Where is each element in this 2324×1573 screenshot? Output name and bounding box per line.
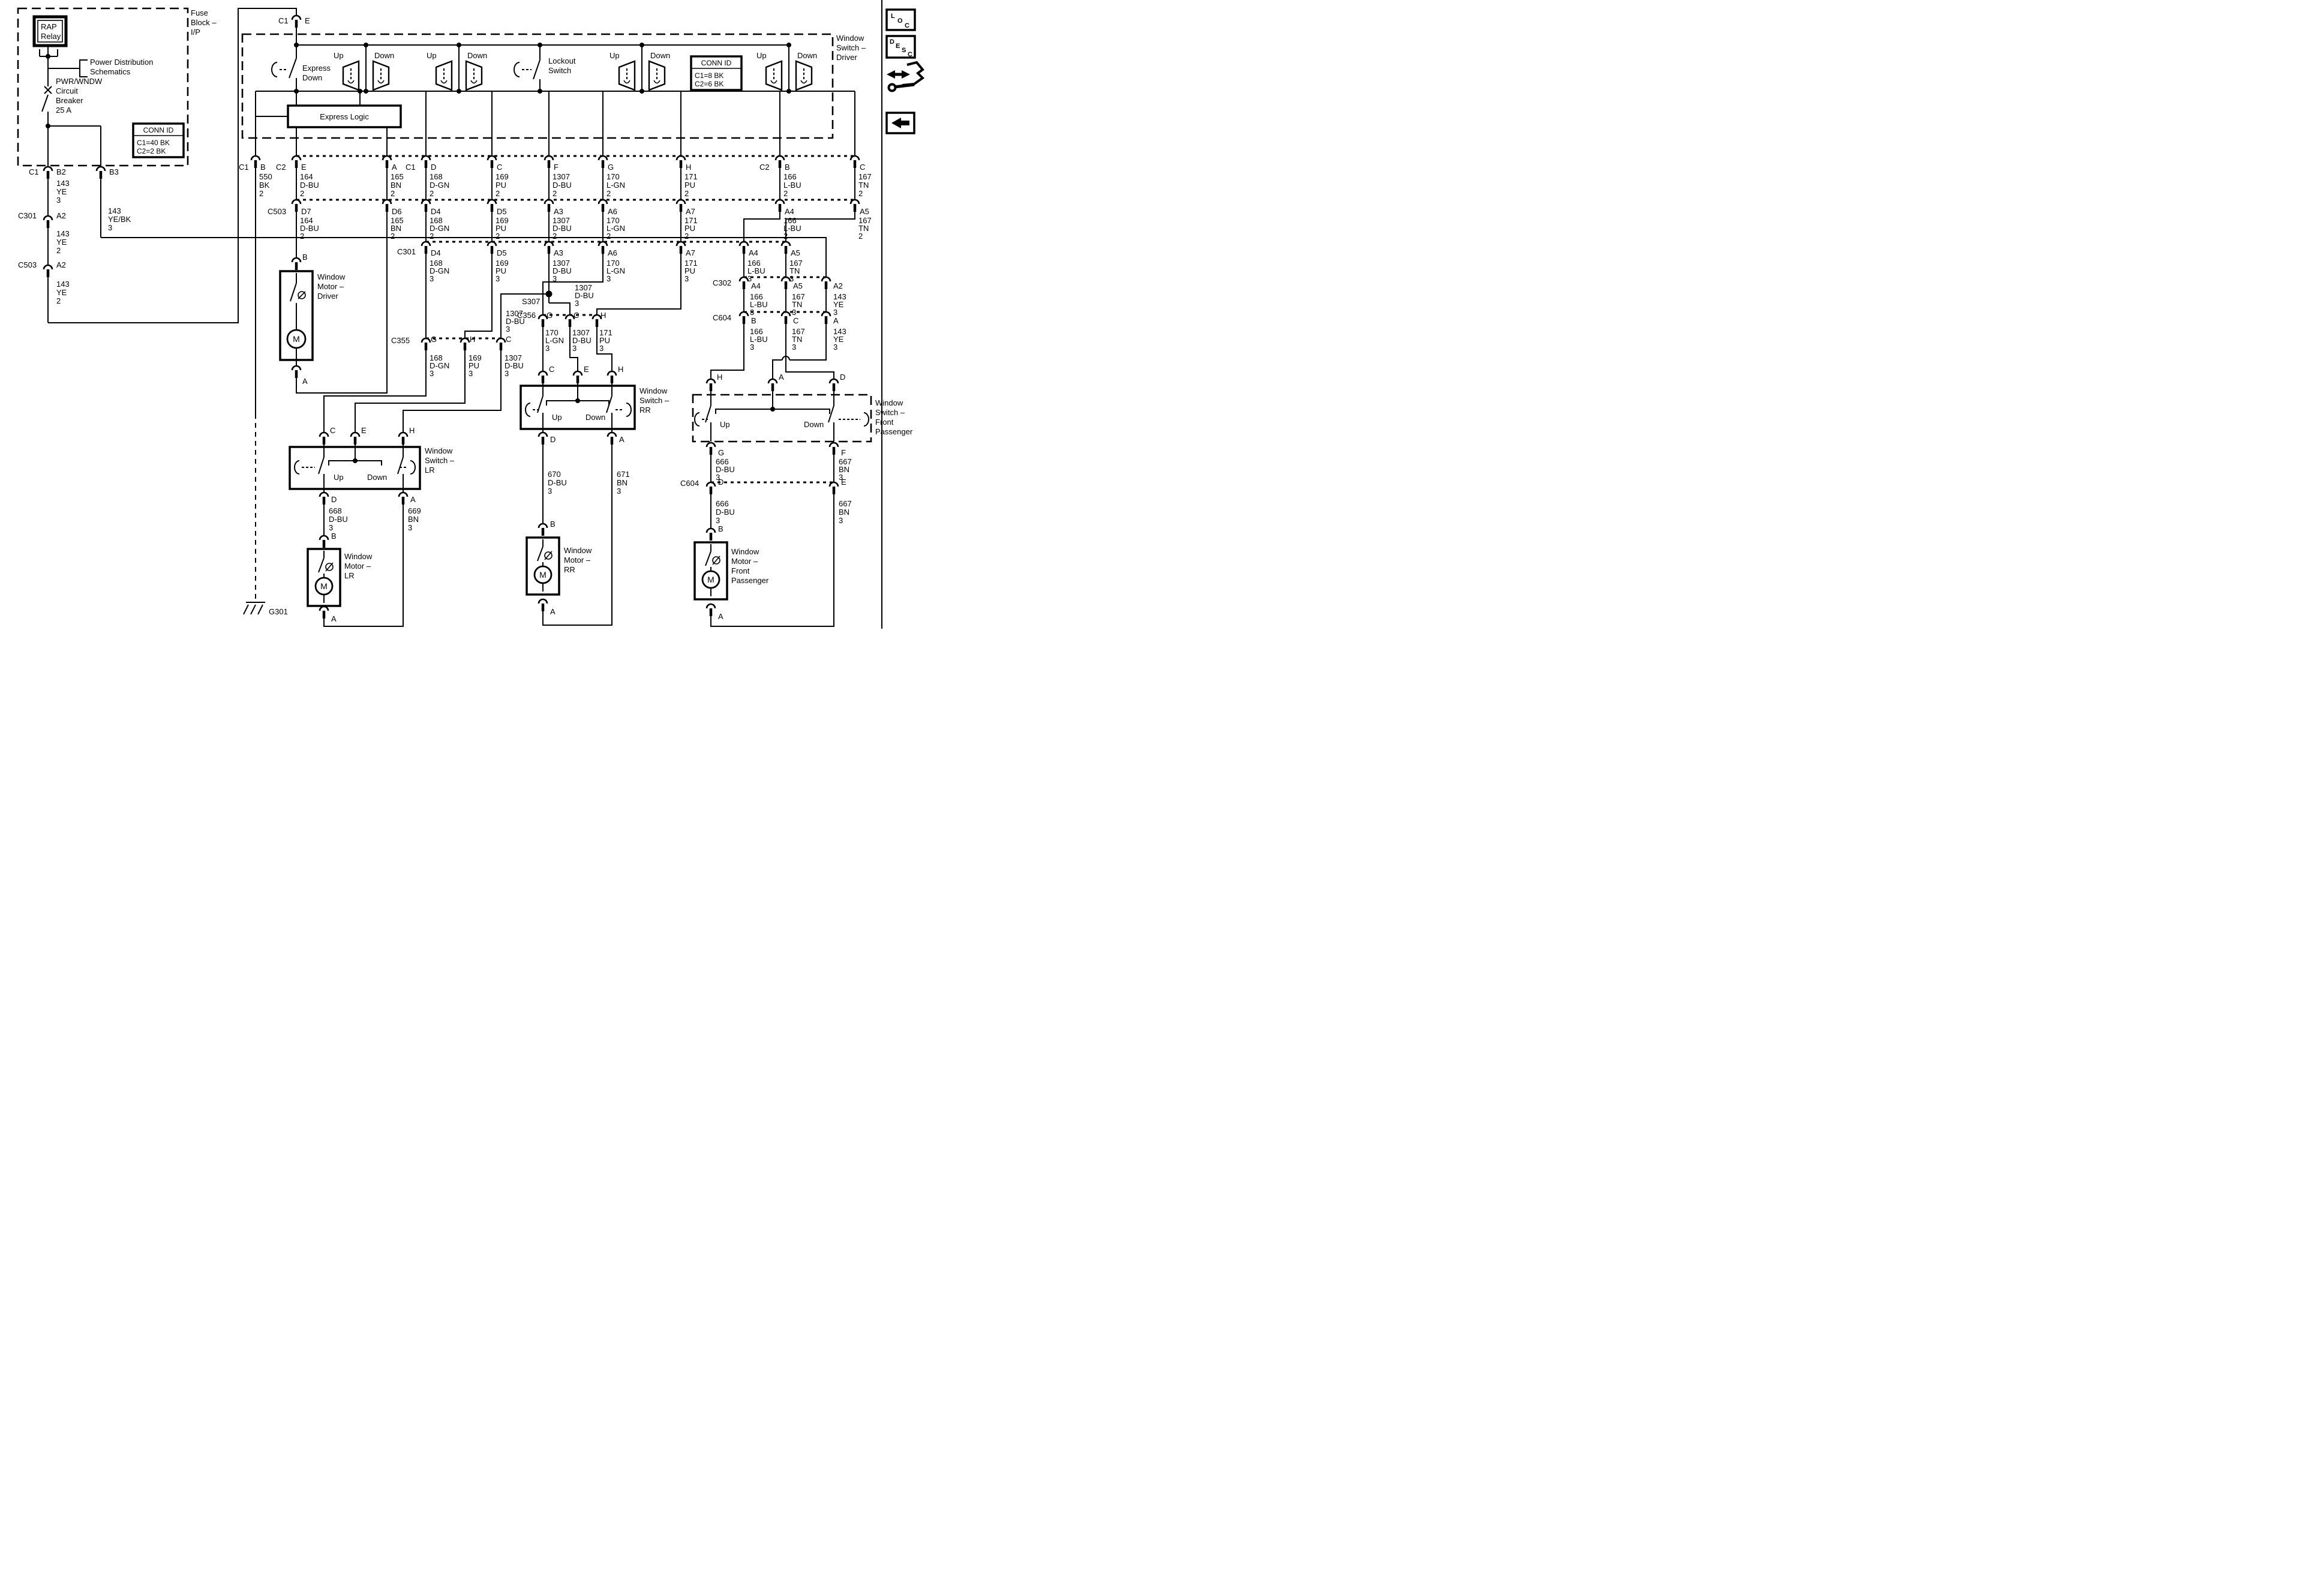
svg-text:PU: PU — [496, 181, 506, 190]
svg-text:C2: C2 — [759, 163, 770, 172]
svg-text:2: 2 — [430, 232, 434, 241]
svg-text:E: E — [584, 365, 589, 374]
svg-text:Window: Window — [317, 272, 346, 281]
svg-text:3: 3 — [505, 369, 509, 378]
svg-text:C: C — [574, 311, 579, 320]
svg-text:YE/BK: YE/BK — [108, 215, 131, 224]
svg-text:3: 3 — [56, 196, 61, 205]
svg-text:3: 3 — [839, 516, 843, 525]
svg-text:Power Distribution: Power Distribution — [90, 58, 154, 67]
ground-g301: G301 — [244, 168, 288, 616]
bracket-icon — [514, 62, 520, 77]
svg-text:Up: Up — [720, 420, 730, 429]
svg-text:3: 3 — [545, 344, 550, 353]
svg-text:Up: Up — [334, 473, 344, 482]
svg-text:D: D — [331, 495, 337, 504]
svg-text:3: 3 — [469, 369, 473, 378]
svg-text:3: 3 — [833, 343, 837, 352]
svg-text:3: 3 — [430, 369, 434, 378]
svg-text:169: 169 — [496, 172, 509, 181]
s307-splice: S307 1307D-BU3 1307D-BU3 — [501, 254, 594, 338]
window-motor-driver: B M Window Motor – Driver A — [280, 212, 387, 393]
svg-text:D-BU: D-BU — [548, 478, 567, 487]
svg-text:B3: B3 — [109, 167, 119, 176]
svg-text:H: H — [717, 373, 722, 382]
connector-row-1: C1 C2 C1 C2 B550BK2 E164D-BU2 A165BN2 D1… — [239, 156, 872, 198]
power-distribution-tap: Power Distribution Schematics — [48, 58, 154, 77]
sidebar: L O C D E S C — [882, 0, 923, 629]
svg-text:2: 2 — [553, 232, 557, 241]
svg-text:BN: BN — [617, 478, 627, 487]
svg-text:Down: Down — [804, 420, 824, 429]
connector-c356: C356 G C H 170L-GN3 1307D-BU3 171PU3 — [517, 254, 681, 371]
wiring-route-icon[interactable] — [887, 62, 923, 91]
svg-text:A2: A2 — [833, 281, 843, 290]
express-down-switch: Express Down — [272, 45, 331, 106]
svg-text:3: 3 — [496, 274, 500, 283]
svg-text:C2: C2 — [276, 163, 286, 172]
svg-text:LR: LR — [344, 571, 355, 580]
svg-text:143: 143 — [56, 280, 70, 289]
svg-text:668: 668 — [329, 506, 342, 515]
svg-text:D-GN: D-GN — [430, 181, 449, 190]
svg-text:A3: A3 — [554, 248, 563, 257]
svg-text:Down: Down — [367, 473, 387, 482]
svg-text:Relay: Relay — [41, 32, 61, 41]
svg-text:B: B — [331, 532, 337, 541]
svg-text:Express Logic: Express Logic — [320, 112, 369, 121]
bracket-icon — [272, 62, 277, 77]
svg-text:Up: Up — [334, 51, 344, 60]
svg-text:A3: A3 — [554, 207, 563, 216]
svg-text:A5: A5 — [791, 248, 800, 257]
svg-text:Passenger: Passenger — [875, 427, 913, 436]
svg-text:B: B — [550, 520, 556, 529]
svg-text:Passenger: Passenger — [731, 576, 769, 585]
svg-text:Switch –: Switch – — [639, 396, 669, 405]
svg-text:G: G — [431, 335, 437, 344]
svg-text:E: E — [301, 163, 307, 172]
svg-text:C355: C355 — [391, 336, 410, 345]
svg-text:RAP: RAP — [41, 22, 57, 31]
svg-text:E: E — [896, 43, 900, 50]
svg-text:G: G — [547, 311, 553, 320]
svg-text:Switch –: Switch – — [425, 456, 455, 465]
svg-text:C: C — [506, 335, 511, 344]
svg-text:YE: YE — [56, 288, 67, 297]
bracket-icon — [695, 413, 699, 426]
bracket-icon — [526, 403, 530, 416]
svg-text:A5: A5 — [860, 207, 869, 216]
svg-text:A: A — [833, 316, 839, 325]
svg-text:2: 2 — [858, 189, 863, 198]
svg-text:RR: RR — [639, 406, 651, 415]
svg-text:A4: A4 — [751, 281, 761, 290]
svg-text:Schematics: Schematics — [90, 67, 131, 76]
svg-text:C2=2 BK: C2=2 BK — [137, 147, 166, 155]
connector-pin-c301 — [44, 216, 52, 220]
svg-text:B: B — [785, 163, 790, 172]
svg-text:D5: D5 — [497, 248, 507, 257]
fp-switch-outline — [693, 395, 871, 442]
svg-text:143: 143 — [56, 229, 70, 238]
svg-text:A6: A6 — [608, 248, 617, 257]
svg-text:Window: Window — [836, 34, 864, 43]
svg-text:667: 667 — [839, 499, 852, 508]
svg-text:165: 165 — [391, 172, 404, 181]
svg-text:2: 2 — [858, 232, 863, 241]
svg-text:Window: Window — [875, 398, 903, 407]
svg-text:A: A — [619, 435, 624, 444]
svg-text:D-BU: D-BU — [329, 515, 348, 524]
svg-text:Down: Down — [650, 51, 670, 60]
svg-text:Motor –: Motor – — [317, 282, 344, 291]
svg-text:2: 2 — [430, 189, 434, 198]
svg-text:550: 550 — [259, 172, 272, 181]
svg-text:D-BU: D-BU — [300, 181, 319, 190]
express-logic-box: Express Logic — [288, 106, 401, 127]
svg-text:Down: Down — [302, 73, 322, 82]
svg-text:3: 3 — [750, 343, 754, 352]
svg-text:B: B — [751, 316, 756, 325]
svg-text:D-BU: D-BU — [553, 181, 572, 190]
svg-text:M: M — [707, 575, 714, 584]
svg-text:D4: D4 — [431, 248, 441, 257]
back-arrow-icon — [891, 118, 909, 128]
svg-text:167: 167 — [858, 172, 872, 181]
svg-text:B: B — [302, 253, 308, 262]
svg-text:Up: Up — [427, 51, 437, 60]
svg-text:C1: C1 — [278, 16, 289, 25]
svg-text:S: S — [902, 47, 906, 54]
svg-text:Block –: Block – — [191, 18, 217, 27]
svg-text:2: 2 — [496, 189, 500, 198]
svg-text:E: E — [305, 16, 310, 25]
bracket-icon — [80, 60, 88, 77]
svg-text:2: 2 — [391, 232, 395, 241]
svg-text:D6: D6 — [392, 207, 402, 216]
svg-text:Motor –: Motor – — [731, 557, 758, 566]
svg-text:H: H — [600, 311, 606, 320]
svg-text:C302: C302 — [713, 278, 731, 287]
svg-text:C1: C1 — [29, 167, 39, 176]
window-switch-rr: C E H Window Switch – RR Up Down D A 670… — [521, 365, 669, 625]
svg-text:2: 2 — [606, 232, 611, 241]
svg-text:CONN ID: CONN ID — [143, 126, 174, 134]
svg-text:YE: YE — [56, 238, 67, 247]
svg-text:3: 3 — [684, 274, 689, 283]
svg-text:170: 170 — [606, 172, 620, 181]
window-switch-front-passenger: H A D Window Switch – Front Passenger Up… — [680, 373, 913, 626]
svg-text:3: 3 — [506, 325, 510, 334]
svg-text:C503: C503 — [18, 260, 37, 269]
conn-id-driver-switch: CONN ID C1=8 BK C2=6 BK — [691, 56, 741, 90]
svg-text:BN: BN — [839, 508, 849, 517]
svg-text:D4: D4 — [431, 207, 441, 216]
connector-c355: C355 G H C 168D-GN3 169PU3 1307D-BU3 — [324, 254, 524, 433]
svg-text:E: E — [841, 478, 846, 487]
svg-text:Motor –: Motor – — [564, 556, 591, 565]
bracket-icon — [410, 461, 415, 474]
svg-text:3: 3 — [108, 223, 112, 232]
svg-text:YE: YE — [56, 187, 67, 196]
svg-text:D5: D5 — [497, 207, 507, 216]
svg-text:3: 3 — [430, 274, 434, 283]
conn-id-fuse-block: CONN ID C1=40 BK C2=2 BK — [133, 124, 184, 157]
svg-text:Window: Window — [639, 386, 668, 395]
svg-text:O: O — [897, 17, 903, 25]
svg-text:671: 671 — [617, 470, 630, 479]
svg-text:G301: G301 — [269, 607, 288, 616]
svg-text:669: 669 — [408, 506, 421, 515]
svg-text:LR: LR — [425, 466, 435, 475]
circuit-breaker: PWR/WNDW Circuit Breaker 25 A — [42, 77, 103, 126]
svg-text:2: 2 — [684, 189, 689, 198]
svg-text:C2=6 BK: C2=6 BK — [695, 80, 723, 88]
svg-text:D-BU: D-BU — [716, 508, 735, 517]
svg-text:Down: Down — [585, 413, 605, 422]
svg-text:CONN ID: CONN ID — [701, 59, 732, 67]
svg-text:Lockout: Lockout — [548, 56, 576, 65]
svg-text:A: A — [331, 614, 337, 623]
svg-text:B: B — [718, 524, 723, 533]
svg-text:Circuit: Circuit — [56, 86, 78, 95]
svg-text:C301: C301 — [18, 211, 37, 220]
svg-text:A: A — [302, 377, 308, 386]
svg-text:143: 143 — [108, 206, 121, 215]
svg-text:Switch: Switch — [548, 66, 571, 75]
svg-text:25 A: 25 A — [56, 106, 71, 115]
wiring-diagram-page: Fuse Block – I/P RAP Relay Power Distrib… — [0, 0, 929, 629]
svg-text:H: H — [686, 163, 691, 172]
svg-text:A6: A6 — [608, 207, 617, 216]
svg-text:2: 2 — [300, 189, 304, 198]
svg-text:D: D — [840, 373, 845, 382]
svg-text:3: 3 — [548, 487, 552, 496]
svg-text:Down: Down — [797, 51, 817, 60]
svg-text:Up: Up — [756, 51, 767, 60]
svg-text:3: 3 — [575, 299, 579, 308]
bracket-icon — [864, 413, 869, 426]
svg-text:3: 3 — [617, 487, 621, 496]
svg-text:3: 3 — [606, 274, 611, 283]
window-switch-driver: C1 E Window Switch – Driver Express Down… — [242, 16, 866, 156]
svg-text:BN: BN — [408, 515, 419, 524]
svg-text:A4: A4 — [749, 248, 758, 257]
svg-text:Down: Down — [374, 51, 394, 60]
svg-text:BK: BK — [259, 181, 270, 190]
svg-text:3: 3 — [329, 523, 333, 532]
svg-text:M: M — [320, 581, 328, 591]
svg-text:168: 168 — [430, 172, 443, 181]
svg-text:Window: Window — [344, 552, 373, 561]
rap-relay: RAP Relay — [34, 17, 66, 59]
svg-text:Motor –: Motor – — [344, 562, 371, 571]
svg-text:Window: Window — [425, 446, 453, 455]
svg-text:3: 3 — [716, 516, 720, 525]
svg-text:D: D — [431, 163, 436, 172]
svg-text:D: D — [718, 478, 723, 487]
svg-text:Driver: Driver — [317, 292, 338, 301]
svg-text:A: A — [718, 612, 723, 621]
svg-text:143: 143 — [56, 179, 70, 188]
svg-text:F: F — [554, 163, 559, 172]
connector-c604-lower: C604 D E — [680, 478, 846, 494]
svg-text:2: 2 — [56, 296, 61, 305]
svg-text:Switch –: Switch – — [836, 43, 866, 52]
svg-text:A: A — [550, 607, 556, 616]
lockout-switch: Lockout Switch — [514, 45, 576, 91]
svg-text:PWR/WNDW: PWR/WNDW — [56, 77, 103, 86]
svg-text:C: C — [549, 365, 554, 374]
svg-text:M: M — [539, 570, 547, 580]
svg-text:D: D — [550, 435, 556, 444]
svg-text:3: 3 — [599, 344, 603, 353]
svg-text:2: 2 — [391, 189, 395, 198]
svg-text:RR: RR — [564, 565, 575, 574]
svg-text:3: 3 — [792, 343, 796, 352]
svg-text:D: D — [890, 38, 894, 46]
svg-text:2: 2 — [783, 189, 788, 198]
svg-text:G: G — [718, 448, 724, 457]
svg-text:C604: C604 — [680, 479, 699, 488]
svg-text:2: 2 — [684, 232, 689, 241]
svg-text:B: B — [260, 163, 266, 172]
svg-text:PU: PU — [684, 181, 695, 190]
svg-text:666: 666 — [716, 499, 729, 508]
fp-updown-switch: Up Down — [756, 45, 817, 91]
svg-text:B2: B2 — [56, 167, 66, 176]
svg-text:A7: A7 — [686, 248, 695, 257]
ground-icon — [244, 602, 265, 614]
svg-text:3: 3 — [572, 344, 577, 353]
fuse-block: Fuse Block – I/P RAP Relay Power Distrib… — [18, 8, 217, 167]
svg-text:2: 2 — [300, 232, 304, 241]
svg-text:C1: C1 — [239, 163, 249, 172]
svg-text:D7: D7 — [301, 207, 311, 216]
svg-text:2: 2 — [56, 246, 61, 255]
svg-text:L: L — [891, 13, 895, 20]
connector-row-2-c503: C503 D7164D-BU2 D6165BN2 D4168D-GN2 D516… — [268, 200, 872, 241]
svg-text:C: C — [905, 22, 909, 29]
svg-text:Down: Down — [467, 51, 487, 60]
svg-text:Window: Window — [564, 546, 592, 555]
window-switch-lr: C E H Window Switch – LR Up Down D A 668… — [290, 426, 455, 626]
connector-pin-c1-e — [292, 16, 301, 20]
svg-text:Up: Up — [609, 51, 620, 60]
svg-text:A4: A4 — [785, 207, 794, 216]
svg-text:3: 3 — [833, 308, 837, 317]
desc-button[interactable]: D E S C — [887, 36, 915, 58]
connector-pin — [44, 167, 52, 171]
driver-switch-outline — [242, 34, 833, 138]
back-button[interactable] — [887, 113, 914, 133]
connector-c604-upper: C604 BCA 166L-BU3 167TN3 143YE3 — [711, 312, 846, 379]
svg-text:L-GN: L-GN — [606, 181, 625, 190]
svg-text:Up: Up — [552, 413, 562, 422]
driver-updown-switch: Up Down — [334, 45, 394, 91]
power-window-schematic: Fuse Block – I/P RAP Relay Power Distrib… — [0, 0, 929, 629]
svg-text:C: C — [860, 163, 865, 172]
svg-text:BN: BN — [391, 181, 401, 190]
svg-text:TN: TN — [858, 181, 869, 190]
loc-button[interactable]: L O C — [887, 10, 915, 30]
svg-text:C1=8 BK: C1=8 BK — [695, 71, 723, 80]
svg-text:S307: S307 — [522, 297, 540, 306]
svg-text:C: C — [793, 316, 798, 325]
svg-text:C604: C604 — [713, 313, 731, 322]
lr-updown-switch: Up Down — [427, 45, 487, 91]
svg-text:H: H — [618, 365, 623, 374]
svg-text:I/P: I/P — [191, 28, 200, 37]
breaker-x-icon — [44, 86, 52, 94]
svg-text:A7: A7 — [686, 207, 695, 216]
svg-text:C301: C301 — [397, 247, 416, 256]
svg-text:Driver: Driver — [836, 53, 857, 62]
fuse-block-label: Fuse — [191, 8, 208, 17]
connector-pin — [97, 167, 105, 171]
svg-text:C: C — [908, 51, 912, 58]
svg-text:E: E — [361, 426, 367, 435]
rr-updown-switch: Up Down — [609, 45, 670, 91]
svg-text:Window: Window — [731, 547, 759, 556]
svg-text:1307: 1307 — [553, 172, 570, 181]
svg-text:C1: C1 — [406, 163, 416, 172]
svg-text:A: A — [410, 495, 416, 504]
svg-text:164: 164 — [300, 172, 313, 181]
svg-text:A: A — [392, 163, 397, 172]
svg-text:L-BU: L-BU — [783, 181, 801, 190]
svg-text:A2: A2 — [56, 211, 66, 220]
svg-text:C: C — [330, 426, 335, 435]
bracket-icon — [295, 461, 299, 474]
svg-text:Front: Front — [875, 418, 894, 427]
svg-text:Breaker: Breaker — [56, 96, 83, 105]
svg-text:670: 670 — [548, 470, 561, 479]
svg-text:Express: Express — [302, 64, 331, 73]
svg-text:H: H — [409, 426, 415, 435]
svg-text:H: H — [470, 335, 475, 344]
svg-text:Front: Front — [731, 566, 750, 575]
svg-text:2: 2 — [553, 189, 557, 198]
svg-text:A: A — [779, 373, 784, 382]
svg-text:Switch –: Switch – — [875, 408, 905, 417]
svg-text:2: 2 — [606, 189, 611, 198]
svg-text:2: 2 — [496, 232, 500, 241]
connector-pin-c503 — [44, 265, 52, 269]
svg-text:C503: C503 — [268, 207, 286, 216]
svg-text:C1=40 BK: C1=40 BK — [137, 139, 170, 147]
svg-text:A2: A2 — [56, 260, 66, 269]
bracket-icon — [626, 403, 631, 416]
svg-text:G: G — [608, 163, 614, 172]
svg-text:171: 171 — [684, 172, 698, 181]
wires-row1-row2 — [296, 168, 855, 200]
svg-text:166: 166 — [783, 172, 797, 181]
svg-text:C356: C356 — [517, 311, 536, 320]
svg-text:A5: A5 — [793, 281, 803, 290]
svg-text:2: 2 — [259, 189, 263, 198]
svg-text:C: C — [497, 163, 502, 172]
svg-text:3: 3 — [408, 523, 412, 532]
svg-text:F: F — [841, 448, 846, 457]
svg-text:M: M — [293, 334, 300, 344]
